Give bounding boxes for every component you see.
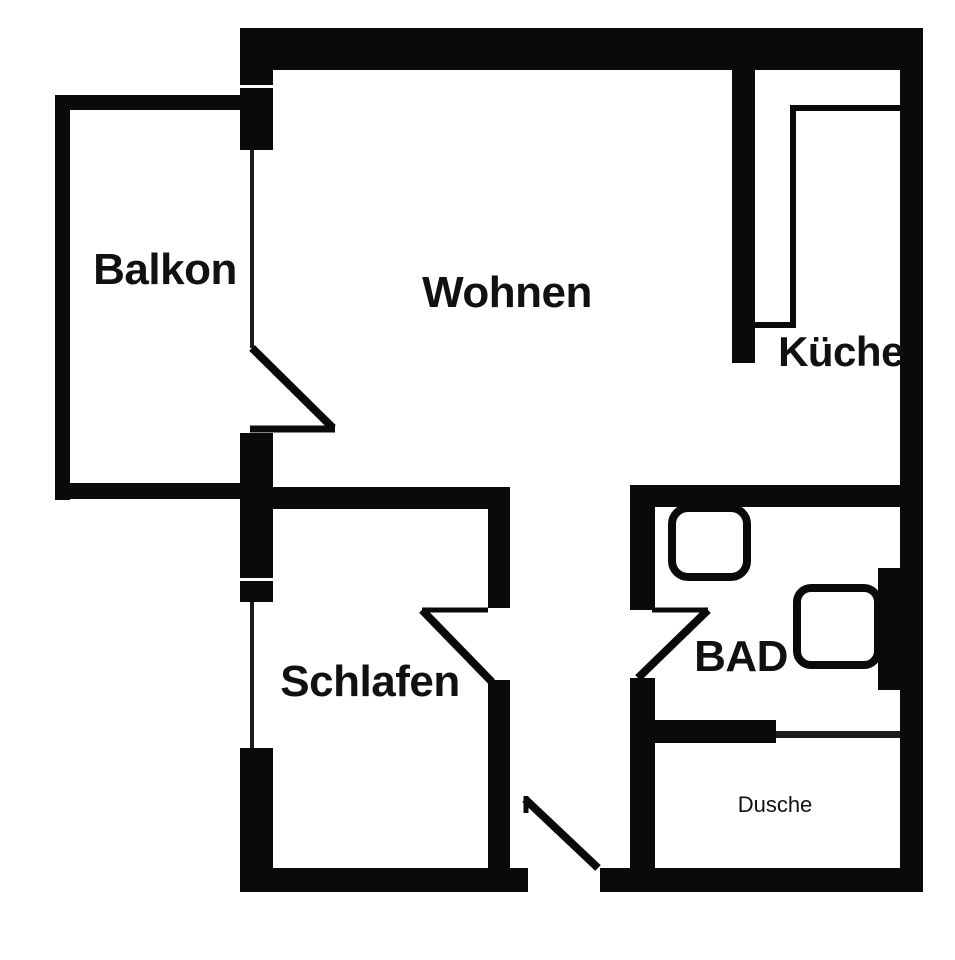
balcony-door-glass <box>250 150 254 348</box>
kueche-divider-wall <box>732 70 755 363</box>
kitchen-counter <box>755 108 900 325</box>
bad-north-wall <box>630 485 900 507</box>
room-label-schlafen: Schlafen <box>280 660 459 704</box>
entry-door-swing <box>525 799 598 868</box>
bad-west-wall-lower <box>630 678 655 868</box>
exterior-left-wall-upper <box>240 70 273 85</box>
room-label-dusche: Dusche <box>738 794 813 816</box>
room-label-wohnen: Wohnen <box>422 271 592 315</box>
room-label-balkon: Balkon <box>93 248 237 292</box>
exterior-right-wall <box>900 28 923 892</box>
dusche-glass-partition <box>776 731 900 738</box>
exterior-bottom-wall-east <box>600 868 923 892</box>
balcony-south-wall <box>55 483 242 499</box>
balcony-door-jamb <box>240 88 273 150</box>
schlafen-window-jamb-top <box>240 581 273 602</box>
dusche-partition-wall <box>640 720 776 743</box>
toilet <box>672 508 747 577</box>
floorplan: Balkon Wohnen Küche Schlafen BAD Dusche <box>0 0 955 960</box>
schlafen-east-wall-upper <box>488 487 510 608</box>
room-label-kueche: Küche <box>778 331 904 373</box>
balcony-door-swing <box>252 348 333 428</box>
room-label-bad: BAD <box>694 635 788 679</box>
balcony-north-wall <box>55 95 242 110</box>
exterior-bottom-wall-west <box>240 868 528 892</box>
sink <box>797 588 878 665</box>
wohnen-schlafen-wall <box>268 487 510 509</box>
schlafen-window-glass <box>250 602 254 748</box>
bad-west-wall-upper <box>630 485 655 610</box>
balcony-west-wall <box>55 95 70 500</box>
exterior-top-wall <box>240 28 923 70</box>
schlafen-east-wall-lower <box>488 680 510 868</box>
